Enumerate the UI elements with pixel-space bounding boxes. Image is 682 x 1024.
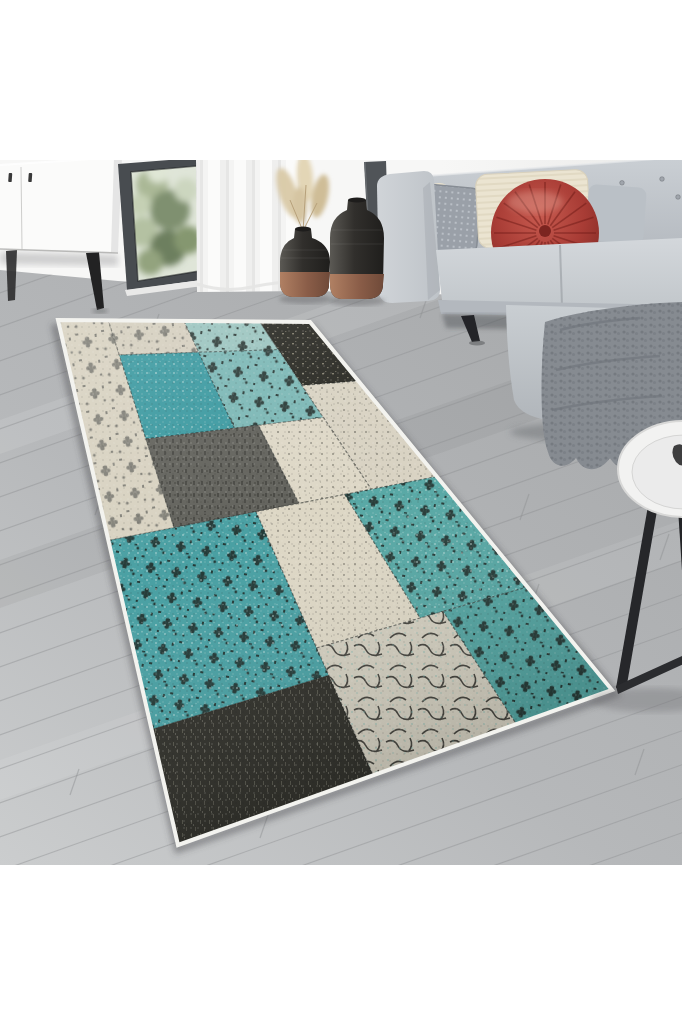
red-pillow-button (539, 225, 551, 237)
tuft-button (676, 195, 681, 200)
product-photo-canvas (0, 0, 682, 1024)
cabinet-leg-shadow (92, 309, 108, 314)
sofa-seat-cushions (436, 238, 682, 308)
tuft-button (660, 177, 665, 182)
sofa-leg-shadow (469, 341, 485, 346)
cabinet-handle (8, 173, 12, 182)
living-room-photo (0, 0, 682, 1024)
tuft-button (620, 181, 625, 186)
cabinet-body (0, 157, 122, 252)
cabinet-handle (28, 173, 32, 182)
